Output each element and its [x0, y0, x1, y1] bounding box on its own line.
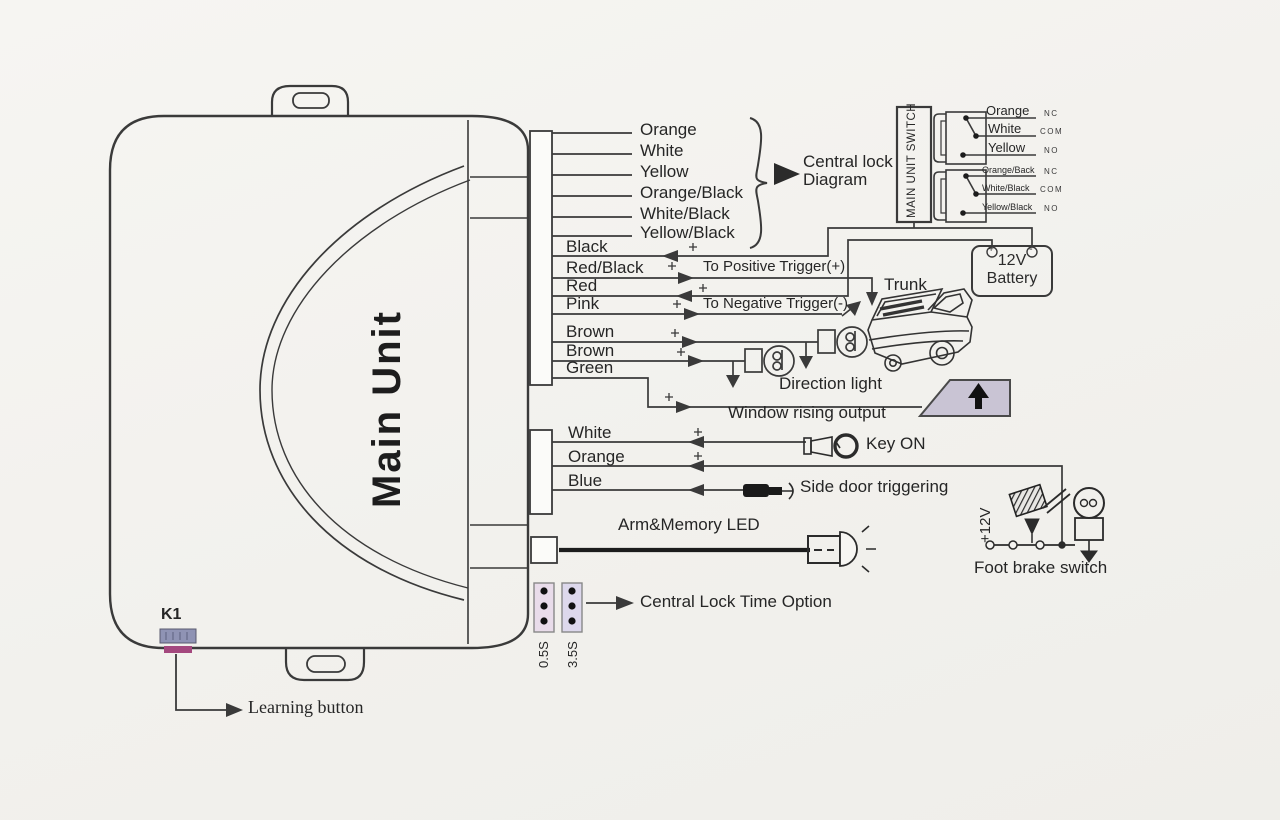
switch-row-orange: Orange [986, 104, 1029, 118]
wire-label-blue: Blue [568, 472, 602, 490]
arm-memory-led-label: Arm&Memory LED [618, 516, 760, 534]
central-lock-brace [750, 118, 800, 248]
door-plug-glyph [743, 483, 793, 499]
central-lock-caption-line2: Diagram [803, 171, 893, 189]
wire-label-white-2: White [568, 424, 611, 442]
jumper-label-05s: 0.5S [537, 641, 551, 668]
positive-trigger-note: To Positive Trigger(+) [703, 259, 845, 275]
wire-label-red: Red [566, 277, 597, 295]
wire-label-white-black: White/Black [640, 205, 730, 223]
central-lock-caption-line1: Central lock [803, 153, 893, 171]
window-rising-label: Window rising output [728, 404, 886, 422]
wiring-diagram-page: Main Unit Orange White Yellow Orange/Bla… [0, 0, 1280, 820]
trunk-label: Trunk [884, 276, 927, 294]
switch-contact-no-2: NO [1044, 205, 1059, 213]
main-unit-outline [110, 86, 528, 680]
key-glyph [804, 435, 857, 457]
k1-learning-button-glyph [160, 629, 243, 717]
wire-label-brown-1: Brown [566, 323, 614, 341]
jumper-label-35s: 3.5S [566, 641, 580, 668]
main-unit-switch-title: MAIN UNIT SWITCH [906, 103, 918, 218]
switch-contact-nc-2: NC [1044, 168, 1059, 176]
switch-row-white: White [988, 122, 1021, 136]
foot-brake-label: Foot brake switch [974, 559, 1107, 577]
window-switch-glyph [920, 380, 1010, 416]
side-door-label: Side door triggering [800, 478, 948, 496]
switch-row-yellow-black: Yellow/Black [982, 203, 1032, 212]
wire-label-black: Black [566, 238, 608, 256]
central-lock-caption: Central lock Diagram [803, 153, 893, 189]
wire-label-green: Green [566, 359, 613, 377]
car-illustration [868, 289, 972, 371]
battery-name: Battery [972, 271, 1052, 288]
main-unit-title: Main Unit [366, 310, 408, 508]
wire-label-white: White [640, 142, 683, 160]
switch-contact-nc-1: NC [1044, 110, 1059, 118]
key-on-label: Key ON [866, 435, 926, 453]
battery-plus-terminal: + [989, 245, 994, 254]
wire-label-yellow-black: Yellow/Black [640, 224, 735, 242]
negative-trigger-note: To Negative Trigger(-) [703, 296, 848, 312]
switch-contact-com-1: COM [1040, 128, 1063, 136]
switch-contact-no-1: NO [1044, 147, 1059, 155]
jumper-blocks [534, 583, 634, 632]
led-glyph [808, 526, 876, 572]
wire-label-orange-black: Orange/Black [640, 184, 743, 202]
foot-brake-switch-glyph [986, 485, 1104, 562]
plus12v-label: +12V [978, 508, 994, 543]
switch-row-orange-back: Orange/Back [982, 166, 1035, 175]
switch-row-yellow: Yellow [988, 141, 1025, 155]
wire-label-red-black: Red/Black [566, 259, 643, 277]
central-lock-time-label: Central Lock Time Option [640, 593, 832, 611]
switch-row-white-black: White/Black [982, 184, 1030, 193]
wire-label-orange: Orange [640, 121, 697, 139]
k1-label: K1 [161, 607, 181, 624]
wire-label-pink: Pink [566, 295, 599, 313]
wire-label-yellow: Yellow [640, 163, 689, 181]
switch-contact-com-2: COM [1040, 186, 1063, 194]
battery-minus-terminal: - [1029, 244, 1033, 256]
learning-button-label: Learning button [248, 698, 363, 717]
wire-label-orange-2: Orange [568, 448, 625, 466]
battery-volts: 12V [972, 253, 1052, 270]
direction-light-label: Direction light [779, 375, 882, 393]
relay-contact-dots [960, 115, 979, 216]
